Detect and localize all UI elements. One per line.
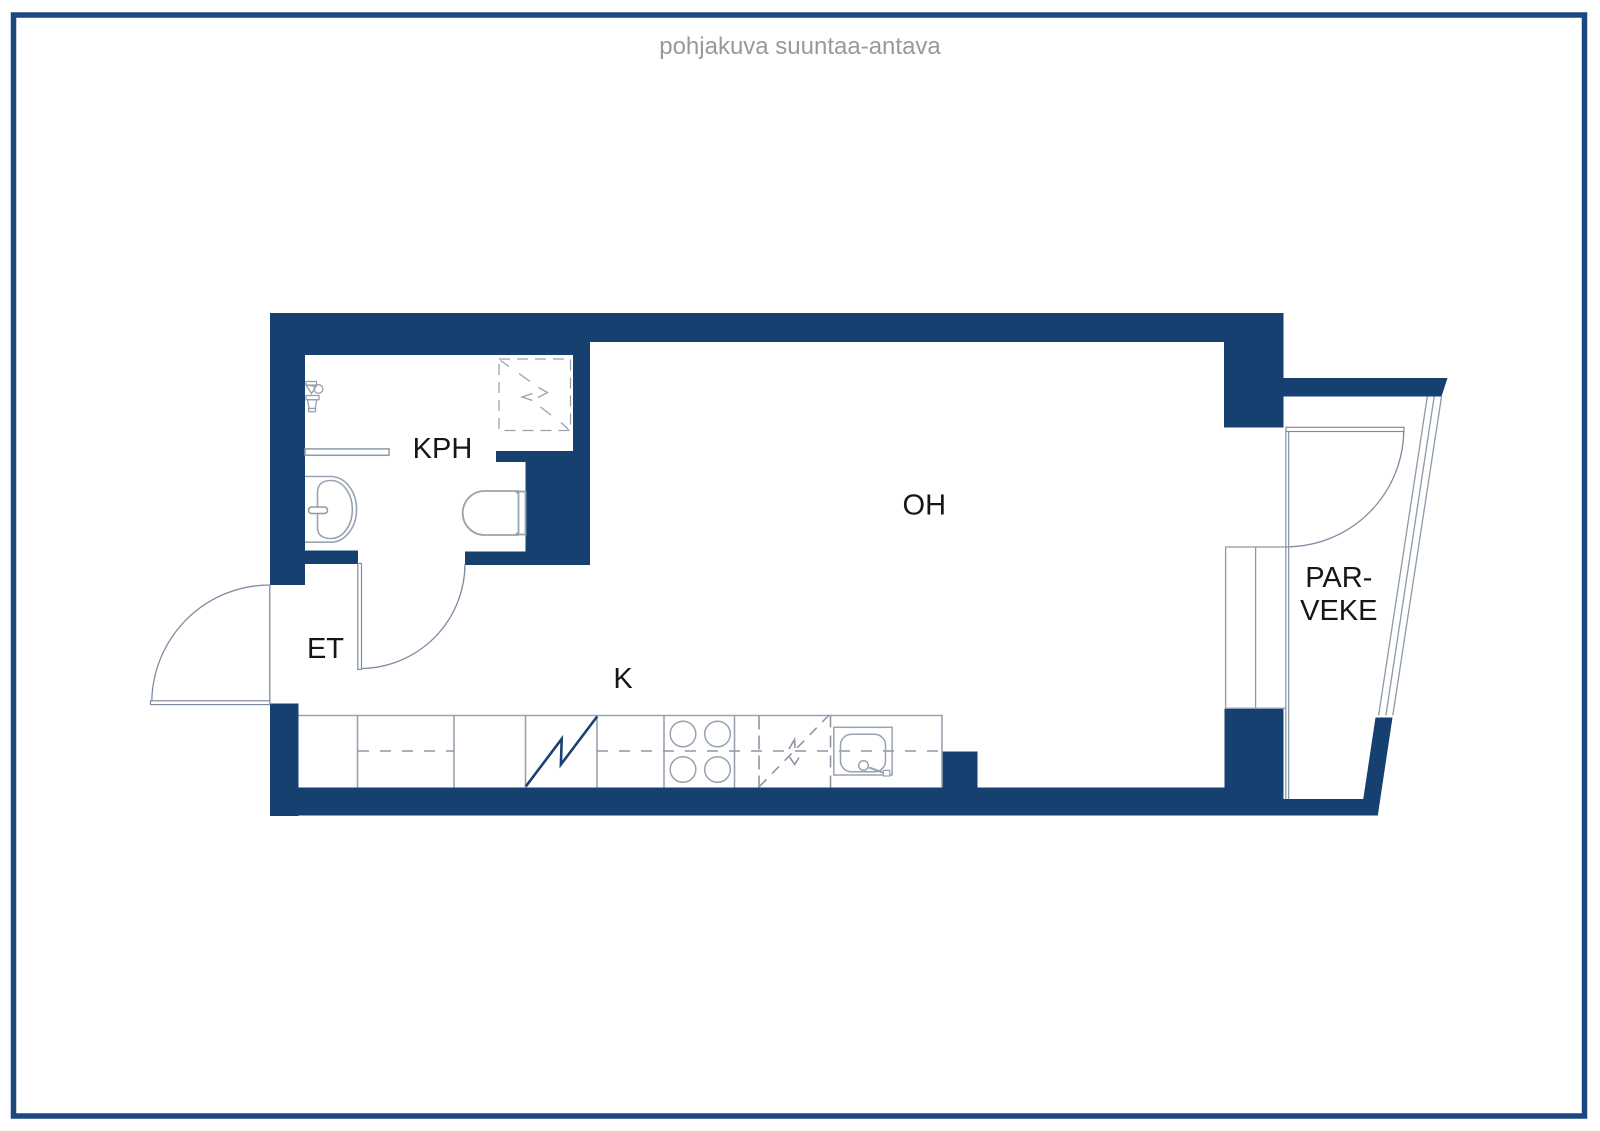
svg-text:OH: OH xyxy=(903,490,947,522)
svg-text:ET: ET xyxy=(307,633,344,665)
svg-text:PAR-: PAR- xyxy=(1305,562,1372,594)
svg-text:K: K xyxy=(613,663,633,695)
svg-text:pohjakuva suuntaa-antava: pohjakuva suuntaa-antava xyxy=(659,33,941,60)
svg-text:KPH: KPH xyxy=(413,433,473,465)
svg-text:VEKE: VEKE xyxy=(1300,595,1377,627)
